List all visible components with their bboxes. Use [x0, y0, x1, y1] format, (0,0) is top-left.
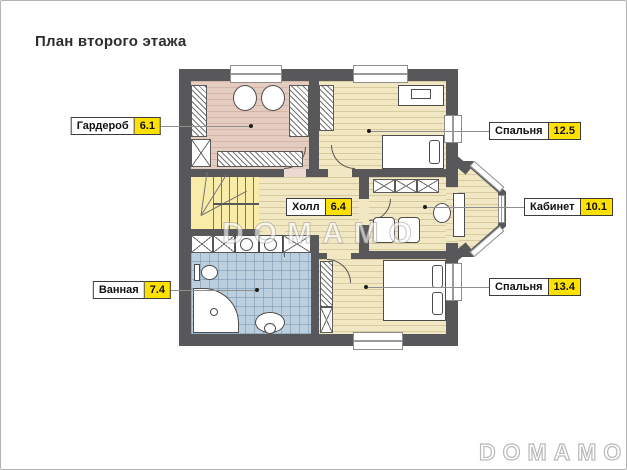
- room-area-badge: 10.1: [581, 198, 613, 216]
- cabinet-icon: [373, 179, 395, 193]
- room-name: Спальня: [489, 122, 549, 140]
- leader-dot-study: [423, 205, 427, 209]
- leader-dot-wardrobe: [249, 124, 253, 128]
- window-top-wardrobe: [230, 65, 282, 83]
- room-name: Кабинет: [524, 198, 581, 216]
- cabinet-icon: [191, 235, 213, 253]
- leader-dot-bedroom1: [367, 129, 371, 133]
- door-opening-wardrobe: [284, 169, 306, 177]
- window-right-bedroom1: [444, 115, 462, 143]
- cabinet-icon: [320, 307, 333, 333]
- room-area-badge: 6.1: [135, 117, 161, 135]
- room-area-badge: 7.4: [145, 281, 171, 299]
- toilet-tank-icon: [194, 264, 200, 281]
- room-area-badge: 6.4: [326, 198, 352, 216]
- watermark-text: DOMAMO: [222, 217, 422, 251]
- toilet-icon: [201, 265, 218, 280]
- room-label-hall: Холл 6.4: [286, 198, 352, 216]
- window-top-bedroom1: [353, 65, 408, 83]
- brand-logo: DOMAMO: [479, 439, 627, 466]
- closet-shelving-icon: [191, 85, 207, 137]
- room-label-wardrobe: Гардероб 6.1: [71, 117, 161, 135]
- shower-drain-icon: [210, 308, 218, 316]
- closet-shelving-icon: [320, 261, 333, 307]
- room-label-study: Кабинет 10.1: [524, 198, 613, 216]
- room-label-bathroom: Ванная 7.4: [93, 281, 171, 299]
- room-name: Ванная: [93, 281, 145, 299]
- stair-flight-divider: [213, 203, 259, 205]
- leader-line-study: [427, 207, 524, 208]
- closet-shelving-icon: [319, 85, 334, 131]
- room-label-bedroom2: Спальня 13.4: [489, 278, 581, 296]
- room-area-badge: 12.5: [549, 122, 581, 140]
- closet-shelving-icon: [289, 85, 309, 137]
- cabinet-icon: [417, 179, 439, 193]
- room-label-bedroom1: Спальня 12.5: [489, 122, 581, 140]
- leader-line-bedroom2: [368, 287, 489, 288]
- stair-treads-upper: [213, 177, 259, 203]
- room-name: Гардероб: [71, 117, 135, 135]
- page-title: План второго этажа: [35, 33, 186, 50]
- leader-dot-bathroom: [255, 288, 259, 292]
- pouf-icon: [233, 85, 257, 111]
- sink-pedestal-icon: [264, 323, 276, 334]
- door-opening-bedroom2: [327, 253, 351, 259]
- leader-line-bedroom1: [371, 131, 489, 132]
- leader-dot-bedroom2: [364, 285, 368, 289]
- pillow-icon: [432, 292, 443, 315]
- cabinet-icon: [191, 139, 211, 167]
- room-name: Спальня: [489, 278, 549, 296]
- window-bottom-bedroom2: [353, 332, 403, 350]
- dresser-icon: [217, 151, 303, 167]
- pouf-icon: [261, 85, 285, 111]
- cabinet-icon: [395, 179, 417, 193]
- door-opening-bedroom1: [328, 169, 352, 177]
- floor-plan-page: План второго этажа: [0, 0, 627, 470]
- room-area-badge: 13.4: [549, 278, 581, 296]
- pillow-icon: [429, 140, 440, 164]
- desk-icon: [453, 193, 465, 237]
- window-right-bedroom2: [444, 263, 462, 301]
- bay-window-pane-e: [498, 195, 505, 223]
- office-chair-icon: [433, 203, 451, 223]
- monitor-icon: [411, 89, 431, 99]
- leader-line-wardrobe: [161, 126, 251, 127]
- room-name: Холл: [286, 198, 326, 216]
- pillow-icon: [432, 265, 443, 288]
- leader-line-bathroom: [171, 290, 257, 291]
